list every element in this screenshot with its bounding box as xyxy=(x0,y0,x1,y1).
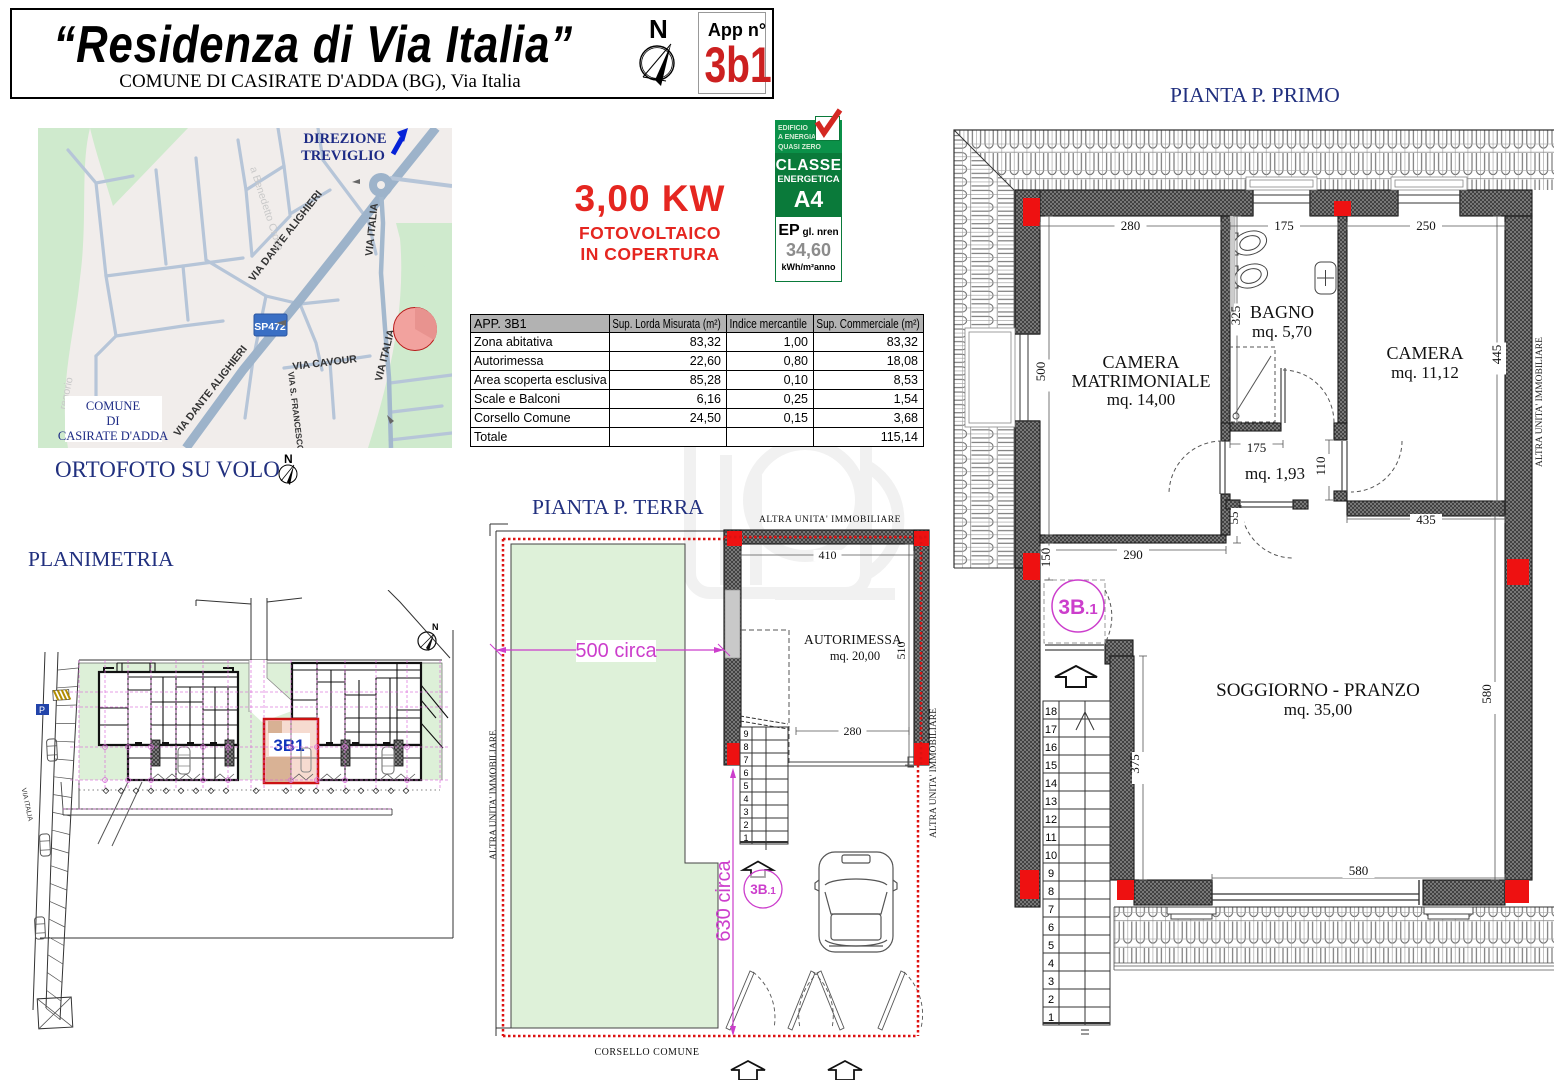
svg-text:55: 55 xyxy=(1226,512,1241,525)
svg-text:175: 175 xyxy=(1247,440,1267,455)
svg-text:CAMERA: CAMERA xyxy=(1386,343,1463,363)
svg-text:COMUNE: COMUNE xyxy=(86,399,141,413)
svg-text:AUTORIMESSA: AUTORIMESSA xyxy=(804,632,902,647)
svg-text:150: 150 xyxy=(1038,548,1053,568)
svg-text:14: 14 xyxy=(1045,778,1057,790)
svg-text:10: 10 xyxy=(1045,850,1057,862)
svg-text:9: 9 xyxy=(743,729,748,739)
svg-text:250: 250 xyxy=(1416,218,1436,233)
svg-text:325: 325 xyxy=(1228,306,1243,326)
svg-text:290: 290 xyxy=(1123,547,1143,562)
svg-text:580: 580 xyxy=(1479,684,1494,704)
svg-text:DIREZIONE: DIREZIONE xyxy=(304,131,387,147)
svg-text:ALTRA UNITA' IMMOBILIARE: ALTRA UNITA' IMMOBILIARE xyxy=(759,515,901,525)
svg-text:5: 5 xyxy=(1048,940,1054,952)
svg-text:410: 410 xyxy=(819,548,837,562)
svg-text:445: 445 xyxy=(1489,345,1504,365)
svg-text:8: 8 xyxy=(743,742,748,752)
svg-text:8: 8 xyxy=(1048,886,1054,898)
svg-text:N: N xyxy=(432,622,439,632)
svg-text:6: 6 xyxy=(743,768,748,778)
svg-text:2: 2 xyxy=(743,820,748,830)
svg-text:5: 5 xyxy=(743,781,748,791)
svg-text:ALTRA UNITA' IMMOBILIARE: ALTRA UNITA' IMMOBILIARE xyxy=(1535,337,1545,467)
svg-text:mq. 5,70: mq. 5,70 xyxy=(1252,322,1312,341)
svg-text:N: N xyxy=(284,452,293,466)
svg-text:mq. 11,12: mq. 11,12 xyxy=(1391,363,1459,382)
svg-text:500 circa: 500 circa xyxy=(575,640,657,662)
svg-text:110: 110 xyxy=(1313,456,1328,475)
svg-text:CASIRATE D'ADDA: CASIRATE D'ADDA xyxy=(58,429,168,443)
svg-text:7: 7 xyxy=(1048,904,1054,916)
svg-text:280: 280 xyxy=(1121,218,1141,233)
svg-text:12: 12 xyxy=(1045,814,1057,826)
svg-text:4: 4 xyxy=(1048,958,1054,970)
svg-text:11: 11 xyxy=(1045,832,1056,844)
svg-text:175: 175 xyxy=(1274,218,1294,233)
svg-text:630 circa: 630 circa xyxy=(713,860,735,942)
svg-text:2: 2 xyxy=(1048,994,1054,1006)
svg-text:CORSELLO COMUNE: CORSELLO COMUNE xyxy=(594,1047,699,1058)
svg-text:mq. 20,00: mq. 20,00 xyxy=(830,649,880,663)
svg-text:CAMERA: CAMERA xyxy=(1102,352,1179,372)
svg-text:TREVIGLIO: TREVIGLIO xyxy=(301,148,385,164)
svg-text:MATRIMONIALE: MATRIMONIALE xyxy=(1072,371,1211,391)
svg-text:7: 7 xyxy=(743,755,748,765)
svg-text:15: 15 xyxy=(1045,760,1057,772)
svg-text:ALTRA UNITA' IMMOBILIARE: ALTRA UNITA' IMMOBILIARE xyxy=(929,708,939,838)
svg-text:500: 500 xyxy=(1033,362,1048,382)
svg-text:mq. 1,93: mq. 1,93 xyxy=(1245,464,1305,483)
svg-text:1: 1 xyxy=(1048,1012,1054,1024)
svg-text:375: 375 xyxy=(1127,754,1142,774)
svg-text:N: N xyxy=(649,14,668,44)
svg-text:18: 18 xyxy=(1045,706,1057,718)
svg-text:mq. 35,00: mq. 35,00 xyxy=(1284,700,1352,719)
svg-text:DI: DI xyxy=(106,414,119,428)
svg-text:VIA ITALIA: VIA ITALIA xyxy=(20,787,34,822)
svg-text:3: 3 xyxy=(743,807,748,817)
svg-text:6: 6 xyxy=(1048,922,1054,934)
svg-text:435: 435 xyxy=(1416,512,1436,527)
svg-text:3: 3 xyxy=(1048,976,1054,988)
svg-text:9: 9 xyxy=(1048,868,1054,880)
svg-text:17: 17 xyxy=(1045,724,1057,736)
svg-text:SOGGIORNO - PRANZO: SOGGIORNO - PRANZO xyxy=(1216,680,1420,701)
svg-text:16: 16 xyxy=(1045,742,1057,754)
svg-text:580: 580 xyxy=(1349,863,1369,878)
svg-text:1: 1 xyxy=(743,833,748,843)
svg-text:280: 280 xyxy=(844,724,862,738)
svg-text:13: 13 xyxy=(1045,796,1057,808)
svg-text:P: P xyxy=(39,705,45,715)
svg-text:BAGNO: BAGNO xyxy=(1250,302,1314,322)
svg-text:mq. 14,00: mq. 14,00 xyxy=(1107,390,1175,409)
svg-text:4: 4 xyxy=(743,794,748,804)
